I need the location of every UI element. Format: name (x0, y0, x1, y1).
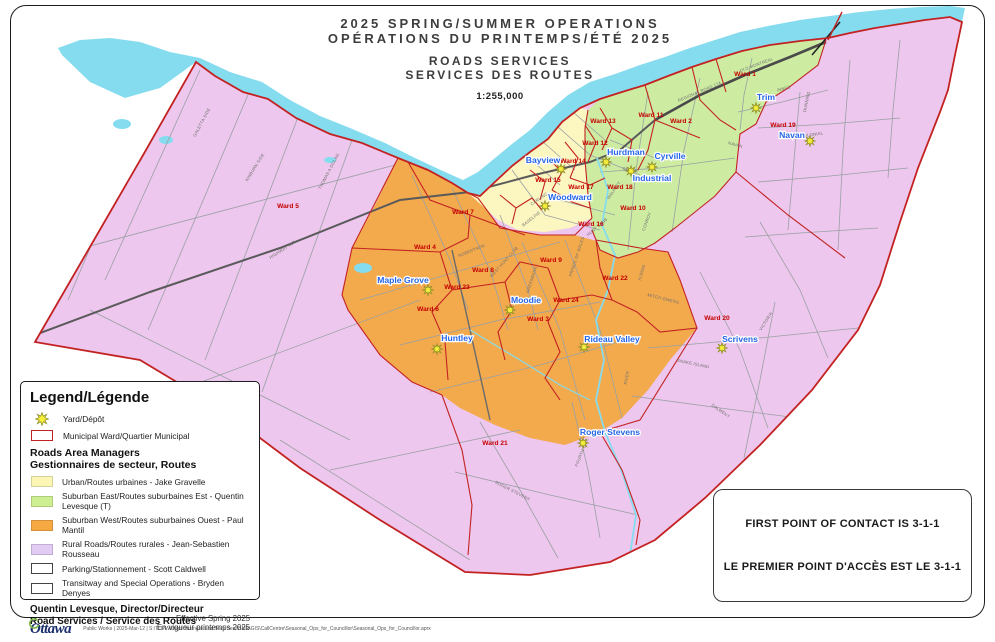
map-title: 2025 SPRING/SUMMER OPERATIONS OPÉRATIONS… (300, 16, 700, 102)
yard-depot-label: Woodward (548, 192, 592, 202)
yard-depot-label: Huntley (441, 333, 473, 343)
ward-label: Ward 1 (734, 71, 756, 78)
ward-label: Ward 23 (444, 284, 470, 291)
ward-label: Ward 15 (535, 177, 561, 184)
map-scale: 1:255,000 (300, 91, 700, 102)
ward-label: Ward 22 (602, 275, 628, 282)
subtitle-line-fr: SERVICES DES ROUTES (300, 68, 700, 82)
yard-depot-label: Scrivens (722, 334, 758, 344)
ward-label: Ward 9 (540, 257, 562, 264)
yard-depot-star-icon (432, 344, 442, 354)
yard-depot-label: Hurdman (607, 147, 645, 157)
legend-item-label: Parking/Stationnement - Scott Caldwell (62, 564, 206, 574)
ward-label: Ward 6 (417, 306, 439, 313)
legend-color-swatch (31, 476, 53, 487)
legend-item: Suburban East/Routes suburbaines Est - Q… (30, 491, 250, 511)
legend-item-label: Urban/Routes urbaines - Jake Gravelle (62, 477, 205, 487)
legend-item-label: Suburban East/Routes suburbaines Est - Q… (62, 491, 250, 511)
ward-label: Ward 18 (607, 184, 633, 191)
legend-manager-items: Urban/Routes urbaines - Jake GravelleSub… (30, 476, 250, 598)
legend-color-swatch (31, 544, 53, 555)
legend-item: Rural Roads/Routes rurales - Jean-Sebast… (30, 539, 250, 559)
ward-label: Ward 3 (527, 316, 549, 323)
legend-ward-row: Municipal Ward/Quartier Municipal (30, 430, 250, 441)
ward-label: Ward 8 (472, 267, 494, 274)
legend-box: Legend/Légende Yard/Dépôt Municipal Ward… (20, 381, 260, 600)
yard-depot-label: Moodie (511, 295, 541, 305)
legend-yard-row: Yard/Dépôt (30, 412, 250, 426)
legend-color-swatch (31, 563, 53, 574)
ward-label: Ward 12 (582, 140, 608, 147)
ottawa-logo: Ottawa (30, 621, 71, 638)
legend-item: Transitway and Special Operations - Bryd… (30, 578, 250, 598)
contact-line-fr: LE PREMIER POINT D'ACCÈS EST LE 3-1-1 (724, 561, 961, 573)
legend-subtitle-fr: Gestionnaires de secteur, Routes (30, 459, 250, 471)
legend-yard-label: Yard/Dépôt (63, 414, 104, 424)
legend-item: Urban/Routes urbaines - Jake Gravelle (30, 476, 250, 487)
yard-depot-star-icon (505, 305, 515, 315)
yard-depot-star-icon (805, 136, 815, 146)
yard-depot-label: Industrial (633, 173, 672, 183)
legend-subtitle-en: Roads Area Managers (30, 447, 250, 459)
ward-label: Ward 4 (414, 244, 436, 251)
yard-depot-star-icon (717, 343, 727, 353)
map-page: GALETTA SIDEKINBURN SIDETHOMAS A DOLANHI… (0, 0, 995, 642)
yard-depot-star-icon (578, 438, 588, 448)
yard-depot-label: Maple Grove (377, 275, 429, 285)
ward-label: Ward 2 (670, 118, 692, 125)
yard-depot-star-icon (601, 157, 611, 167)
yard-depot-label: Rideau Valley (584, 334, 640, 344)
legend-subtitle: Roads Area Managers Gestionnaires de sec… (30, 447, 250, 471)
legend-color-swatch (31, 583, 53, 594)
ward-label: Ward 14 (560, 158, 586, 165)
ward-label: Ward 13 (590, 118, 616, 125)
legend-ward-label: Municipal Ward/Quartier Municipal (63, 431, 190, 441)
legend-item: Parking/Stationnement - Scott Caldwell (30, 563, 250, 574)
title-line-en: 2025 SPRING/SUMMER OPERATIONS (300, 16, 700, 31)
ward-label: Ward 10 (620, 205, 646, 212)
ward-label: Ward 16 (578, 221, 604, 228)
yard-depot-label: Roger Stevens (580, 427, 640, 437)
yard-depot-star-icon (35, 412, 49, 426)
ward-label: Ward 11 (638, 112, 663, 119)
legend-item: Suburban West/Routes suburbaines Ouest -… (30, 515, 250, 535)
yard-depot-label: Trim (757, 92, 776, 102)
ward-label: Ward 20 (704, 315, 730, 322)
legend-item-label: Transitway and Special Operations - Bryd… (62, 578, 250, 598)
yard-depot-star-icon (751, 103, 761, 113)
contact-box: FIRST POINT OF CONTACT IS 3-1-1 LE PREMI… (713, 489, 972, 602)
yard-depot-star-icon (423, 285, 433, 295)
footer: Ottawa Public Works | 2025-Mar-12 | S:\T… (30, 619, 431, 639)
ward-label: Ward 7 (452, 209, 474, 216)
yard-depot-star-icon (647, 162, 657, 172)
legend-color-swatch (31, 520, 53, 531)
logo-swirl-icon (28, 617, 40, 629)
ward-label: Ward 19 (770, 122, 796, 129)
yard-depot-star-icon (556, 164, 566, 174)
legend-item-label: Suburban West/Routes suburbaines Ouest -… (62, 515, 250, 535)
legend-color-swatch (31, 496, 53, 507)
yard-depot-star-icon (540, 201, 550, 211)
footer-path-text: Public Works | 2025-Mar-12 | S:\TUPW\Dep… (83, 626, 431, 632)
contact-line-en: FIRST POINT OF CONTACT IS 3-1-1 (745, 518, 939, 530)
legend-item-label: Rural Roads/Routes rurales - Jean-Sebast… (62, 539, 250, 559)
ward-label: Ward 24 (553, 297, 579, 304)
yard-depot-label: Bayview (526, 155, 561, 165)
yard-depot-label: Cyrville (654, 151, 685, 161)
ward-boundary-swatch (31, 430, 53, 441)
title-line-fr: OPÉRATIONS DU PRINTEMPS/ÉTÉ 2025 (300, 31, 700, 46)
yard-depot-label: Navan (779, 130, 805, 140)
ward-label: Ward 17 (568, 184, 594, 191)
ward-label: Ward 21 (482, 440, 508, 447)
legend-title: Legend/Légende (30, 389, 250, 406)
ward-label: Ward 5 (277, 203, 299, 210)
subtitle-line-en: ROADS SERVICES (300, 54, 700, 68)
